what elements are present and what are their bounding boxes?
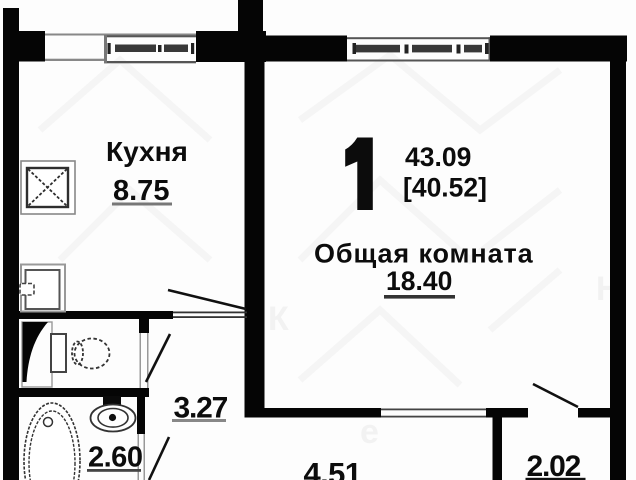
svg-text:[40.52]: [40.52] xyxy=(403,173,487,203)
svg-text:8.75: 8.75 xyxy=(113,175,169,207)
svg-text:К: К xyxy=(268,300,289,338)
svg-text:2.60: 2.60 xyxy=(88,442,142,474)
svg-text:43.09: 43.09 xyxy=(405,142,471,172)
svg-text:Общая комната: Общая комната xyxy=(314,239,534,269)
svg-text:4.51: 4.51 xyxy=(304,456,362,480)
svg-text:2.02: 2.02 xyxy=(527,450,581,480)
svg-text:Кухня: Кухня xyxy=(106,136,188,167)
svg-text:е: е xyxy=(360,413,379,451)
svg-text:18.40: 18.40 xyxy=(386,266,452,296)
